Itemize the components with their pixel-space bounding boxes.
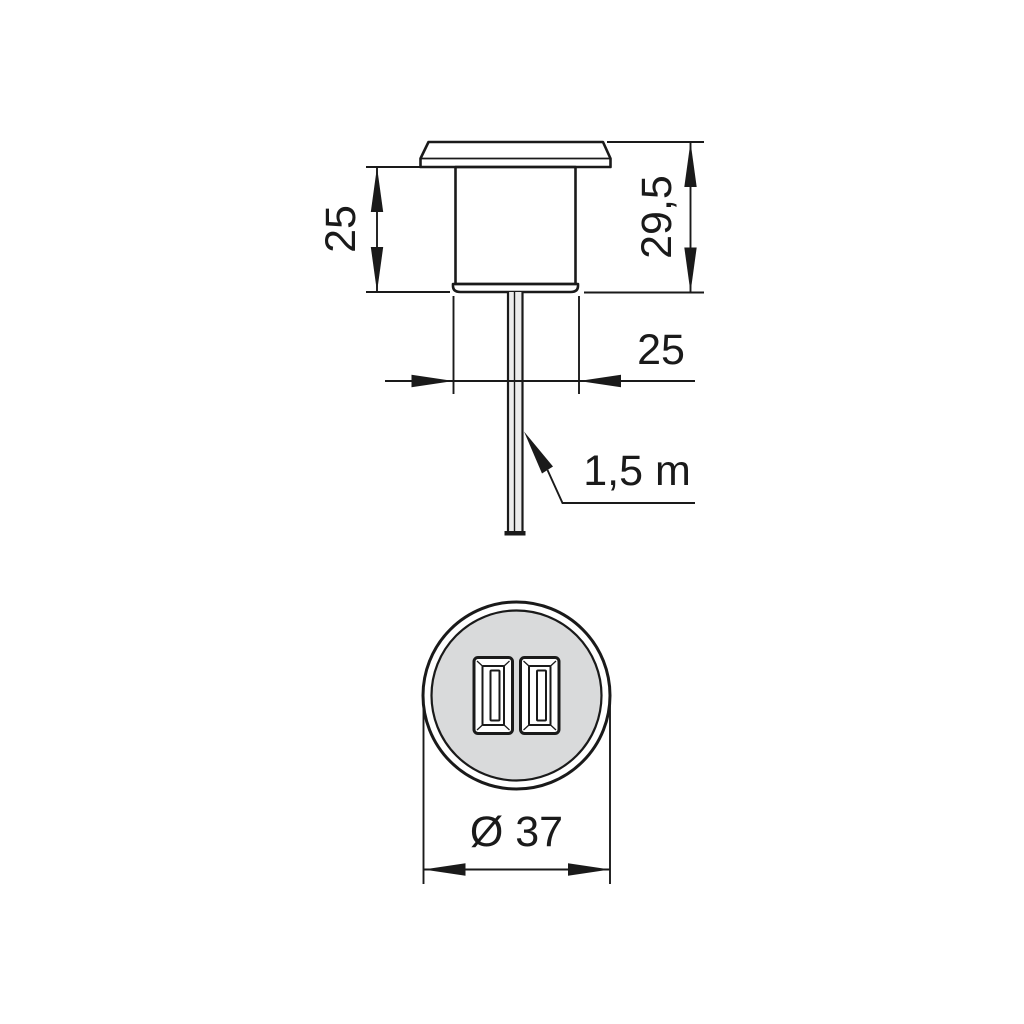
usb-contact-slot (491, 671, 500, 721)
arrowhead-right (568, 863, 610, 876)
side-view (421, 142, 611, 536)
cable-length-label: 1,5 m (583, 447, 691, 495)
arrowhead-up (371, 167, 383, 212)
power-cable (505, 292, 526, 536)
cable-end-cap (505, 531, 526, 536)
cable-fill (508, 292, 523, 532)
dimension-label-body-height: 25 (317, 205, 365, 253)
dimension-body-height: 25 (317, 167, 450, 292)
dimension-total-height: 29,5 (584, 142, 704, 293)
arrowhead-left (424, 863, 466, 876)
usb-port-left (474, 658, 513, 734)
cable-length-callout: 1,5 m (524, 432, 695, 504)
technical-drawing-svg: 25 29,5 25 1,5 m (0, 0, 1024, 1024)
arrowhead-up (684, 142, 696, 187)
face-inner-circle (432, 611, 602, 781)
arrowhead-right (412, 375, 454, 388)
dimension-body-width: 25 (385, 296, 695, 394)
arrowhead-down (684, 248, 696, 293)
arrowhead-down (371, 247, 383, 292)
arrowhead-left (579, 375, 621, 388)
technical-drawing: 25 29,5 25 1,5 m (0, 0, 1024, 1024)
usb-contact-slot (537, 671, 546, 721)
device-body (456, 167, 576, 284)
dimension-label-diameter: Ø 37 (470, 808, 563, 856)
usb-port-right (521, 658, 560, 734)
front-view (423, 602, 610, 789)
leader-arrowhead (524, 432, 553, 474)
dimension-label-total-height: 29,5 (633, 175, 681, 259)
dimension-label-body-width: 25 (637, 326, 685, 374)
device-body-base (453, 284, 578, 292)
flange-cap (421, 142, 611, 167)
